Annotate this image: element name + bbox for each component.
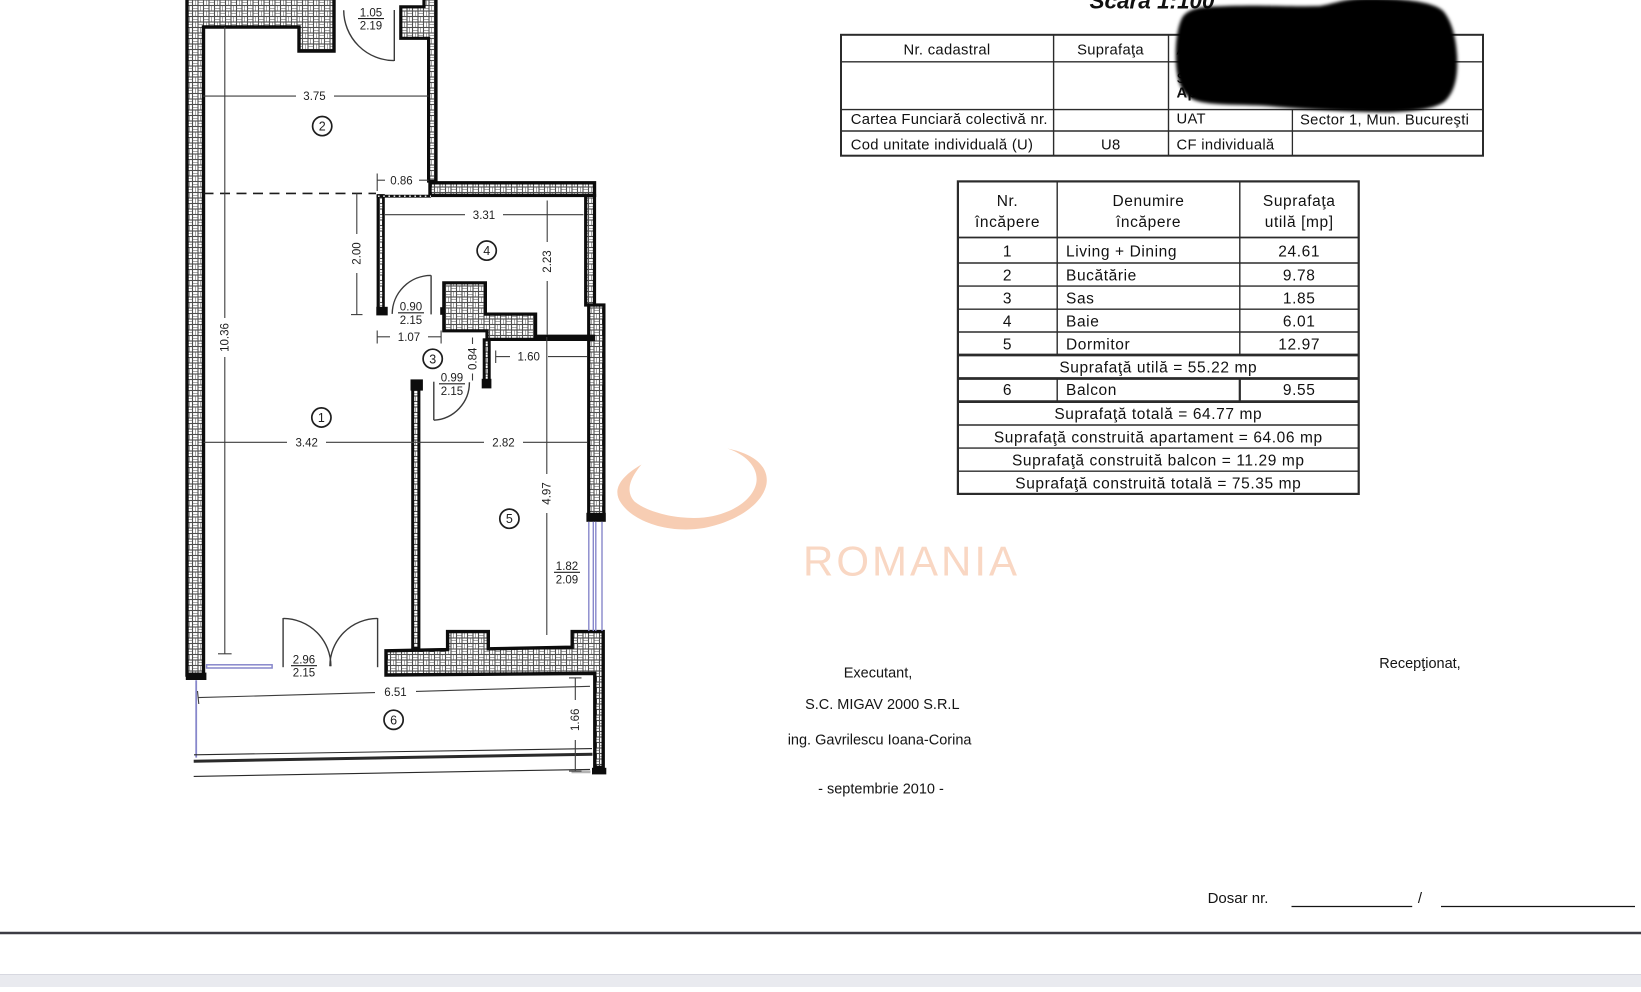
svg-text:Suprafaţă construită balcon =: Suprafaţă construită balcon = 11.29 mp — [1012, 453, 1305, 470]
svg-text:utilă [mp]: utilă [mp] — [1265, 214, 1334, 231]
svg-text:Dormitor: Dormitor — [1066, 337, 1130, 354]
svg-text:2.15: 2.15 — [293, 668, 315, 680]
svg-text:S.C. MIGAV 2000 S.R.L: S.C. MIGAV 2000 S.R.L — [805, 697, 959, 713]
svg-text:1.60: 1.60 — [518, 352, 540, 364]
svg-text:4: 4 — [483, 244, 490, 258]
svg-text:6: 6 — [390, 713, 397, 727]
svg-text:1.66: 1.66 — [570, 709, 582, 731]
svg-text:2.82: 2.82 — [492, 437, 514, 449]
svg-text:Nr.: Nr. — [997, 193, 1019, 210]
svg-text:4.97: 4.97 — [542, 482, 554, 504]
svg-text:3: 3 — [1003, 291, 1012, 308]
svg-text:2: 2 — [319, 120, 326, 134]
svg-text:Dosar nr.: Dosar nr. — [1208, 890, 1269, 907]
svg-text:Suprafaţă construită apartamen: Suprafaţă construită apartament = 64.06 … — [994, 430, 1323, 447]
svg-text:U8: U8 — [1101, 138, 1121, 154]
svg-text:2.23: 2.23 — [542, 250, 554, 272]
svg-text:1.85: 1.85 — [1283, 291, 1316, 308]
svg-text:- septembrie 2010 -: - septembrie 2010 - — [818, 781, 944, 797]
svg-text:Executant,: Executant, — [844, 666, 913, 682]
svg-text:2.15: 2.15 — [400, 315, 422, 327]
svg-text:1.82: 1.82 — [556, 561, 578, 573]
svg-text:1: 1 — [318, 411, 325, 425]
svg-text:0.90: 0.90 — [400, 302, 422, 314]
svg-text:Sector 1, Mun. Bucureşti: Sector 1, Mun. Bucureşti — [1300, 113, 1469, 129]
svg-text:4: 4 — [1003, 314, 1012, 331]
svg-text:3: 3 — [429, 352, 436, 366]
svg-text:Suprafaţa: Suprafaţa — [1077, 43, 1144, 59]
svg-text:Balcon: Balcon — [1066, 382, 1117, 399]
svg-text:Denumire: Denumire — [1113, 193, 1185, 210]
svg-text:2: 2 — [1003, 268, 1012, 285]
svg-text:Living + Dining: Living + Dining — [1066, 244, 1177, 261]
svg-text:5: 5 — [1003, 337, 1012, 354]
svg-text:3.31: 3.31 — [473, 210, 495, 222]
svg-text:Suprafaţă totală = 64.77 mp: Suprafaţă totală = 64.77 mp — [1054, 406, 1262, 423]
svg-text:3.42: 3.42 — [296, 437, 318, 449]
svg-text:Nr. cadastral: Nr. cadastral — [904, 43, 991, 59]
svg-text:9.55: 9.55 — [1283, 382, 1316, 399]
svg-text:6.01: 6.01 — [1283, 314, 1316, 331]
svg-text:Bucătărie: Bucătărie — [1066, 268, 1137, 285]
svg-text:5: 5 — [506, 512, 513, 526]
svg-text:ing. Gavrilescu Ioana-Corina: ing. Gavrilescu Ioana-Corina — [788, 733, 973, 749]
svg-text:UAT: UAT — [1177, 112, 1206, 128]
svg-text:2.19: 2.19 — [360, 21, 382, 33]
svg-text:ROMANIA: ROMANIA — [803, 538, 1020, 585]
svg-text:2.00: 2.00 — [352, 242, 364, 264]
svg-text:încăpere: încăpere — [1115, 214, 1181, 231]
svg-text:Cartea Funciară colectivă nr.: Cartea Funciară colectivă nr. — [851, 112, 1048, 128]
svg-text:Suprafaţă construită totală =: Suprafaţă construită totală = 75.35 mp — [1015, 476, 1301, 493]
svg-text:6: 6 — [1003, 382, 1012, 399]
svg-text:10.36: 10.36 — [220, 323, 232, 352]
svg-text:0.84: 0.84 — [467, 347, 479, 370]
svg-text:Baie: Baie — [1066, 314, 1099, 331]
svg-text:Suprafaţa: Suprafaţa — [1263, 193, 1336, 210]
svg-text:1: 1 — [1003, 244, 1012, 261]
svg-text:0.99: 0.99 — [441, 373, 463, 385]
svg-text:Recepţionat,: Recepţionat, — [1379, 656, 1460, 672]
svg-text:9.78: 9.78 — [1283, 268, 1316, 285]
svg-text:1.07: 1.07 — [398, 332, 420, 344]
svg-text:1.05: 1.05 — [360, 8, 382, 20]
svg-text:6.51: 6.51 — [384, 687, 406, 699]
svg-text:24.61: 24.61 — [1278, 244, 1320, 261]
svg-text:Cod unitate individuală (U): Cod unitate individuală (U) — [851, 138, 1033, 154]
svg-text:CF individuală: CF individuală — [1177, 138, 1275, 154]
svg-text:2.15: 2.15 — [441, 386, 463, 398]
svg-text:Suprafaţă utilă = 55.22 mp: Suprafaţă utilă = 55.22 mp — [1059, 360, 1257, 377]
svg-text:2.96: 2.96 — [293, 655, 315, 667]
svg-text:Sas: Sas — [1066, 291, 1095, 308]
svg-text:3.75: 3.75 — [303, 91, 325, 103]
svg-text:2.09: 2.09 — [556, 574, 578, 586]
svg-text:12.97: 12.97 — [1278, 337, 1320, 354]
svg-text:încăpere: încăpere — [974, 214, 1040, 231]
svg-text:0.86: 0.86 — [390, 175, 412, 187]
